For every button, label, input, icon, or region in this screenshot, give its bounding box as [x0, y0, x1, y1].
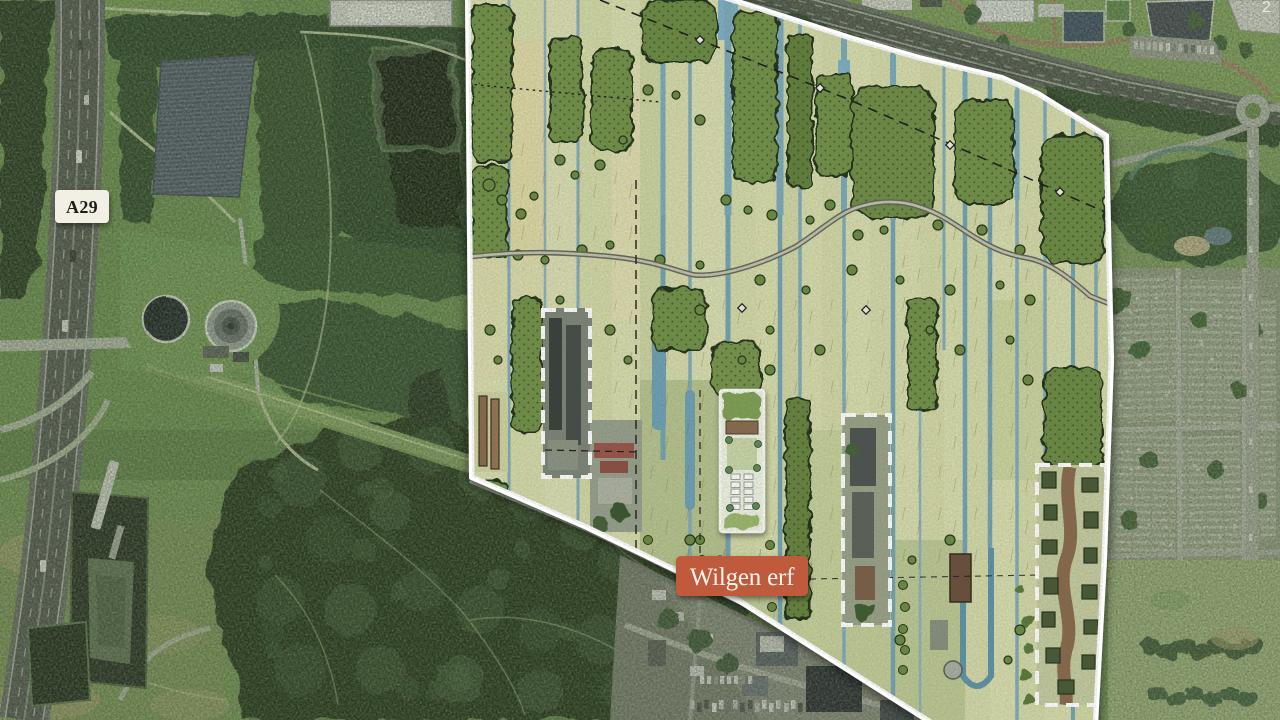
svg-text:Wilgen erf: Wilgen erf [690, 564, 795, 591]
svg-text:2: 2 [1262, 0, 1271, 16]
svg-text:A29: A29 [66, 197, 98, 217]
